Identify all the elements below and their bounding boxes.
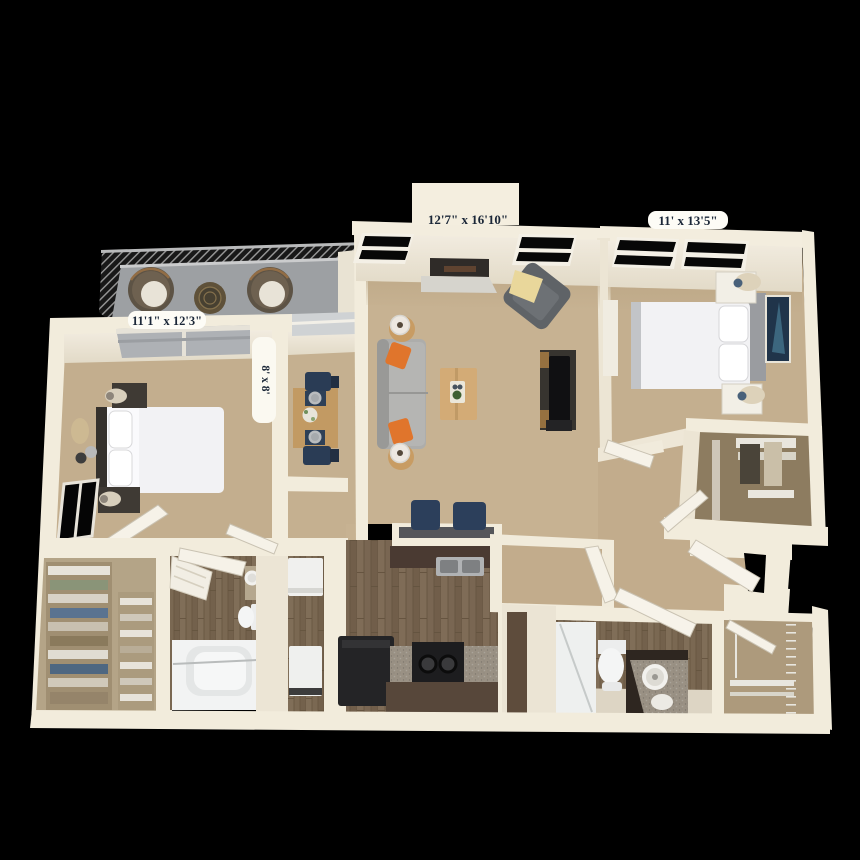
svg-text:12'7" x 16'10": 12'7" x 16'10" [428,212,508,227]
svg-text:11'1" x 12'3": 11'1" x 12'3" [132,314,202,328]
svg-text:8' x 8': 8' x 8' [259,365,271,394]
svg-text:11' x 13'5": 11' x 13'5" [658,213,717,228]
